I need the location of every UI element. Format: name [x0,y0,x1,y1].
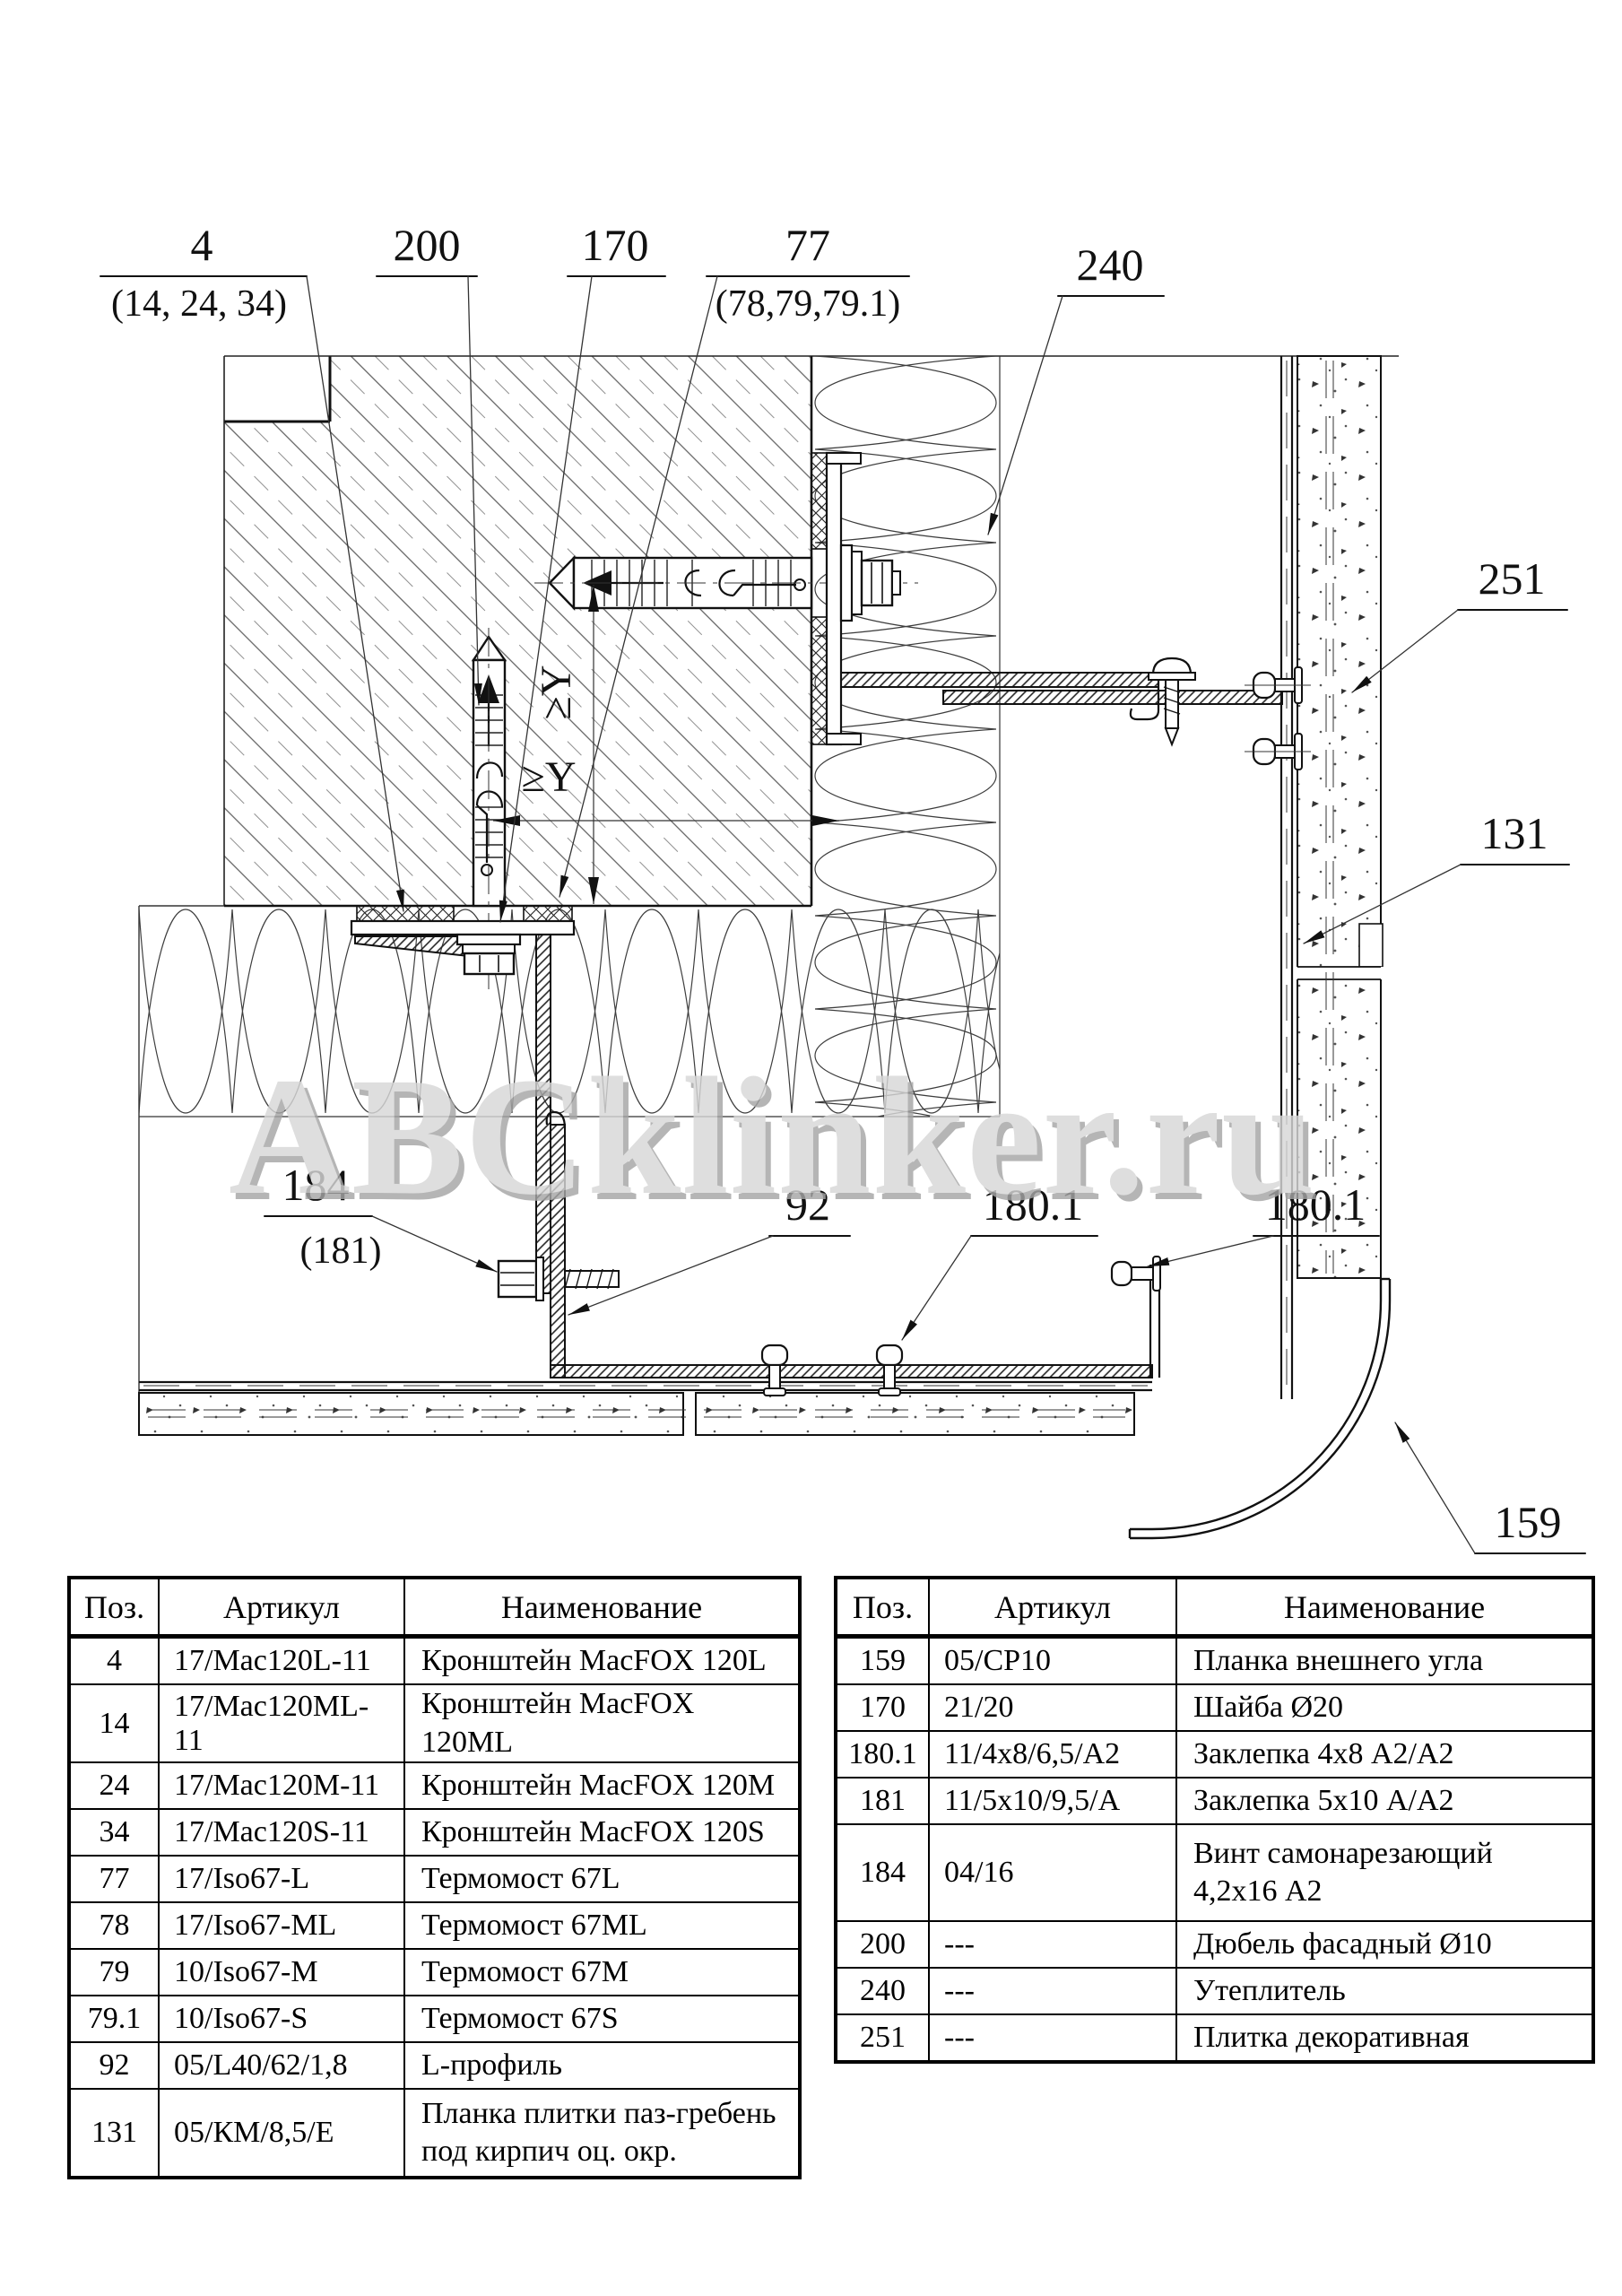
drawing-sheet: ≥Y ≥Y 4 (14, 24, 34) 200 170 77 (78,79,7… [0,0,1622,2296]
bolt-head [862,561,892,605]
rivet-right-2 [1245,734,1311,770]
table-row: 240---Утеплитель [836,1968,1593,2014]
table-row: 3417/Mac120S-11Кронштейн MacFOX 120S [69,1809,800,1856]
table-row: 2417/Mac120M-11Кронштейн MacFOX 120M [69,1762,800,1809]
table-row: 417/Mac120L-11Кронштейн MacFOX 120L [69,1637,800,1685]
washer-170 [841,545,852,621]
svg-text:159: 159 [1495,1497,1562,1547]
col-header-pos: Поз. [836,1578,929,1637]
anchor-nut [464,953,514,974]
dim-label-horizontal: ≥Y [521,753,576,801]
rivet-corner [1112,1257,1160,1291]
watermark-abcklinker: ABCklinker.ru [229,1039,1484,1233]
col-header-article: Артикул [159,1578,404,1637]
tile-joint [1295,967,1383,979]
col-header-article: Артикул [929,1578,1176,1637]
table-row: 7817/Iso67-MLТермомост 67ML [69,1902,800,1949]
table-row: 180.111/4x8/6,5/А2Заклепка 4x8 А2/А2 [836,1731,1593,1778]
table-row: 17021/20Шайба Ø20 [836,1684,1593,1731]
table-row: 13105/КМ/8,5/ЕПланка плитки паз-гребень … [69,2089,800,2178]
corner-detail-drawing: ≥Y ≥Y 4 (14, 24, 34) 200 170 77 (78,79,7… [0,0,1622,1565]
callout-251: 251 [1352,553,1567,692]
table-header-row: Поз. Артикул Наименование [836,1578,1593,1637]
table-row: 79.110/Iso67-SТермомост 67S [69,1996,800,2042]
table-row: 7717/Iso67-LТермомост 67L [69,1856,800,1902]
col-header-name: Наименование [404,1578,800,1637]
table-header-row: Поз. Артикул Наименование [69,1578,800,1637]
table-row: 7910/Iso67-MТермомост 67M [69,1949,800,1996]
col-header-pos: Поз. [69,1578,159,1637]
facade-profile-right [1281,356,1292,1399]
table-row: 1417/Mac120ML-11Кронштейн MacFOX 120ML [69,1684,800,1762]
soffit-strip-and-tile [139,1382,1152,1435]
tile-tongue-step [1359,924,1383,967]
parts-table-right: Поз. Артикул Наименование 15905/СР10План… [834,1576,1595,2064]
col-header-name: Наименование [1176,1578,1593,1637]
table-row: 251---Плитка декоративная [836,2014,1593,2062]
dim-label-vertical: ≥Y [533,665,580,719]
svg-text:200: 200 [394,220,461,270]
svg-text:240: 240 [1077,239,1144,290]
table-row: 200---Дюбель фасадный Ø10 [836,1921,1593,1968]
svg-text:170: 170 [582,220,649,270]
callout-159: 159 [1395,1422,1585,1553]
svg-text:(78,79,79.1): (78,79,79.1) [716,283,900,325]
svg-text:251: 251 [1479,553,1546,604]
svg-text:(181): (181) [300,1231,382,1272]
table-row: 15905/СР10Планка внешнего угла [836,1637,1593,1685]
table-row: 18404/16Винт самонарезающий 4,2x16 А2 [836,1824,1593,1921]
table-row: 9205/L40/62/1,8L-профиль [69,2042,800,2089]
svg-text:77: 77 [785,220,830,270]
svg-text:4: 4 [191,220,213,270]
corner-profile-159 [1112,1257,1390,1538]
parts-table-left: Поз. Артикул Наименование 417/Mac120L-11… [67,1576,802,2179]
svg-text:131: 131 [1481,808,1548,858]
svg-text:(14, 24, 34): (14, 24, 34) [111,283,287,325]
callout-240: 240 [988,239,1164,535]
table-row: 18111/5x10/9,5/АЗаклепка 5x10 А/А2 [836,1778,1593,1824]
